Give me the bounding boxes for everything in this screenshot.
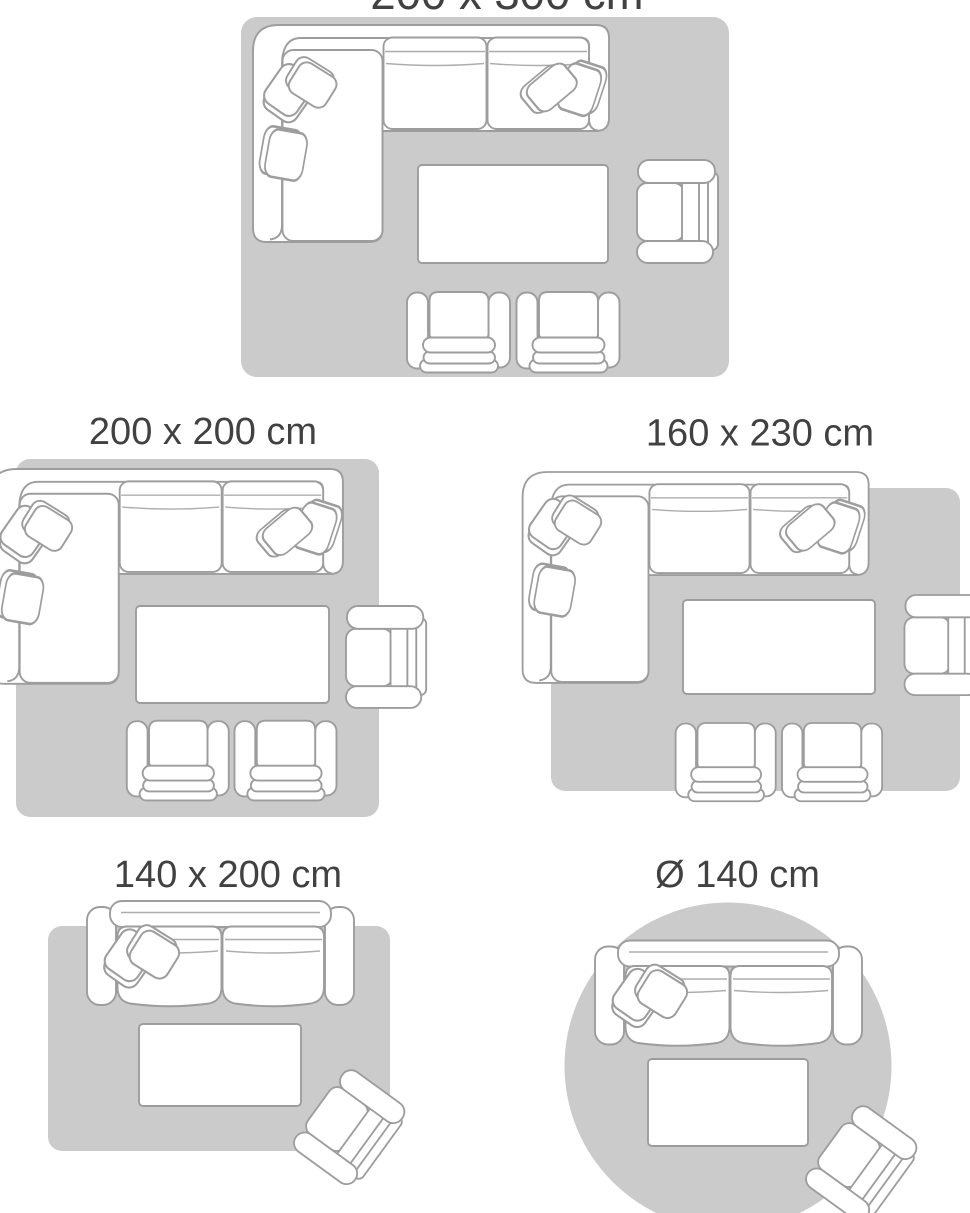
svg-text:160 x 230 cm: 160 x 230 cm [646, 413, 874, 455]
svg-text:140 x 200 cm: 140 x 200 cm [114, 854, 342, 896]
svg-text:Ø 140 cm: Ø 140 cm [655, 854, 820, 896]
svg-text:200 x 300 cm: 200 x 300 cm [370, 0, 643, 19]
svg-text:200 x 200 cm: 200 x 200 cm [89, 411, 317, 453]
